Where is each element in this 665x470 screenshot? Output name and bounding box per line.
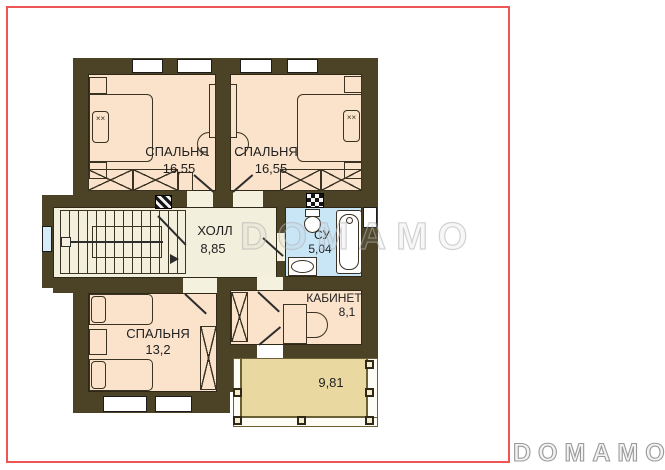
wall-top xyxy=(73,58,378,74)
wall-left-upper xyxy=(73,74,88,191)
pillow-icon: ×× xyxy=(343,110,360,142)
window-icon xyxy=(287,59,318,73)
nightstand-icon xyxy=(344,76,362,93)
pillow-icon xyxy=(91,361,106,389)
window-icon xyxy=(177,59,212,73)
nightstand-icon xyxy=(89,77,107,94)
room-area-bedroom3: 13,2 xyxy=(140,343,176,357)
wardrobe-icon xyxy=(231,292,248,342)
wall-office-top xyxy=(230,277,378,290)
railing-post-icon xyxy=(365,360,374,369)
desk-icon xyxy=(283,304,307,344)
railing-post-icon xyxy=(233,388,242,397)
closet-door-icon xyxy=(230,84,237,138)
stairs-direction-arrow-icon xyxy=(170,254,179,264)
nightstand-icon xyxy=(89,329,107,355)
wall-bottom xyxy=(73,392,230,413)
wall-hall-top xyxy=(73,191,378,207)
wall-left-lower xyxy=(73,288,88,392)
wall-bump-top xyxy=(42,195,73,207)
vent-shaft-icon xyxy=(306,193,324,208)
railing-post-icon xyxy=(365,388,374,397)
room-label-hall: ХОЛЛ xyxy=(187,224,243,238)
sink-icon xyxy=(291,260,314,273)
watermark-logo: DOMAMO xyxy=(513,439,665,468)
room-area-bedroom1: 16,55 xyxy=(141,162,217,176)
floor-plan: ×× ×× СПАЛЬНЯ 16,55 СПАЛЬНЯ 16,55 ХОЛЛ 8… xyxy=(0,0,665,470)
door-opening-bedroom1 xyxy=(187,191,213,207)
door-opening-office xyxy=(257,277,283,290)
wall-bedroom3-right xyxy=(217,293,230,345)
vent-shaft-icon xyxy=(155,195,172,209)
wardrobe-icon xyxy=(88,169,133,191)
terrace-area: 9,81 xyxy=(310,376,352,390)
room-label-bedroom1: СПАЛЬНЯ xyxy=(139,145,215,159)
window-icon xyxy=(42,226,52,252)
stairs-rail xyxy=(66,241,163,243)
room-label-bedroom2: СПАЛЬНЯ xyxy=(228,145,304,159)
wall-bedroom-partition xyxy=(216,74,230,191)
room-label-office: КАБИНЕТ xyxy=(302,292,366,305)
room-area-office: 8,1 xyxy=(330,306,364,319)
pillow-icon: ×× xyxy=(92,111,109,143)
wardrobe-icon xyxy=(200,326,217,390)
window-icon xyxy=(103,396,147,412)
wall-office-bottom xyxy=(230,345,378,358)
watermark-center: DOMAMO xyxy=(240,216,477,259)
room-label-bedroom3: СПАЛЬНЯ xyxy=(120,327,196,341)
stairs-rail-post xyxy=(61,237,71,247)
railing-post-icon xyxy=(365,416,374,425)
door-opening-bedroom2 xyxy=(233,191,263,207)
wardrobe-icon xyxy=(321,169,362,191)
room-area-bedroom2: 16,55 xyxy=(233,162,309,176)
window-icon xyxy=(240,59,272,73)
room-area-hall: 8,85 xyxy=(185,242,241,256)
door-opening-terrace xyxy=(257,345,283,358)
closet-door-icon xyxy=(209,84,216,138)
railing-post-icon xyxy=(297,416,306,425)
door-opening-bedroom3 xyxy=(183,278,217,293)
window-icon xyxy=(155,396,192,412)
window-icon xyxy=(132,59,163,73)
pillow-icon xyxy=(91,296,106,323)
railing-post-icon xyxy=(233,416,242,425)
